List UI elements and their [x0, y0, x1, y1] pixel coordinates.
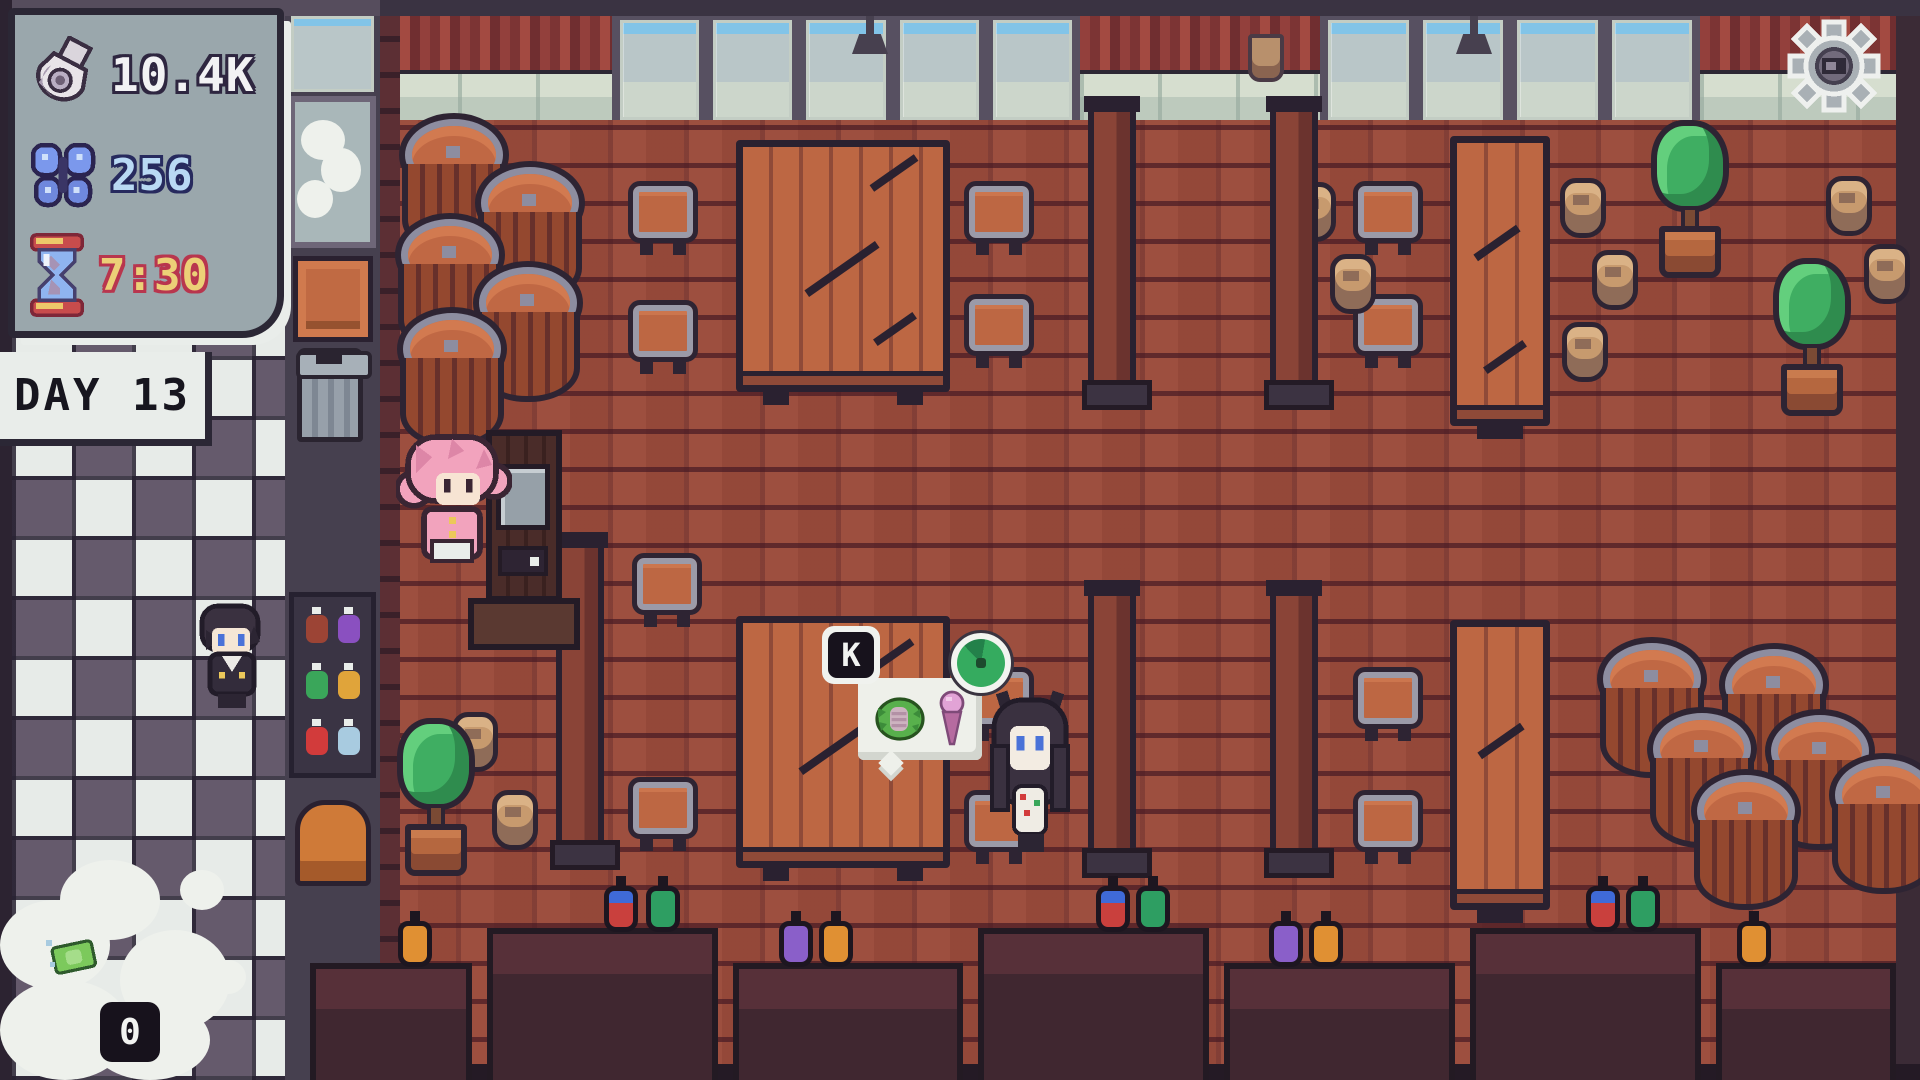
- bar-counter: [1470, 928, 1701, 1080]
- potion-bottle-icon: [1737, 921, 1771, 967]
- stool: [1353, 790, 1423, 864]
- ice-cream-icon: [938, 690, 966, 748]
- potion-bottle-icon: [1309, 921, 1343, 967]
- dish-counter-value: 0: [119, 1012, 141, 1053]
- money-value: 10.4K: [111, 48, 254, 102]
- stool: [628, 181, 698, 255]
- potion-bottle-icon: [819, 921, 853, 967]
- bottle-cabinet: [289, 592, 376, 778]
- potion-bottle-icon: [306, 727, 328, 755]
- potion-bottle-icon: [338, 727, 360, 755]
- long-table: [1450, 136, 1550, 426]
- potion-bottle-icon: [779, 921, 813, 967]
- lettuce-wrap-icon: [874, 694, 928, 744]
- window-pane: [1517, 20, 1598, 120]
- pillar: [1270, 104, 1318, 400]
- basin: [295, 800, 371, 886]
- bar-counter: [1224, 963, 1455, 1080]
- potion-bottle-icon: [306, 615, 328, 643]
- window-pane: [291, 16, 374, 92]
- potted-tree: [1768, 258, 1856, 416]
- gear-icon: [1786, 18, 1882, 114]
- suds: [210, 960, 246, 994]
- window-pane: [713, 20, 792, 120]
- butterfly-icon: [27, 139, 99, 211]
- pillar: [556, 540, 604, 860]
- bar-counter: [978, 928, 1209, 1080]
- stool: [632, 553, 702, 627]
- game-screen: K 0: [0, 0, 1920, 1080]
- bar-counter: [487, 928, 718, 1080]
- butterfly-value: 256: [111, 150, 193, 201]
- hud-timer-row: 7:30: [27, 225, 265, 325]
- potion-bottle-icon: [646, 886, 680, 932]
- bar-counter: [310, 963, 472, 1080]
- window-pane: [1328, 20, 1409, 120]
- potion-bottle-icon: [338, 615, 360, 643]
- window-pane: [900, 20, 979, 120]
- hud-butterfly-row: 256: [27, 125, 265, 225]
- suds: [180, 870, 224, 910]
- potion-bottle-icon: [1626, 886, 1660, 932]
- stool: [1353, 181, 1423, 255]
- stool: [964, 181, 1034, 255]
- dish-counter-badge: 0: [100, 1002, 160, 1062]
- settings-button[interactable]: [1786, 18, 1882, 114]
- day-banner: DAY 13: [0, 352, 212, 446]
- window-pane: [620, 20, 699, 120]
- window-pane: [1612, 20, 1693, 120]
- hourglass-icon: [27, 232, 87, 318]
- potion-bottle-icon: [1136, 886, 1170, 932]
- window-band: [1320, 16, 1700, 120]
- interact-key-prompt[interactable]: K: [822, 626, 880, 684]
- hud-money-row: 10.4K: [27, 25, 265, 125]
- barrel: [398, 306, 506, 448]
- clay-jug: [1864, 244, 1910, 304]
- stool: [628, 777, 698, 851]
- money-bag-icon: [27, 36, 99, 114]
- cash-icon: [42, 928, 106, 988]
- potion-bottle-icon: [1096, 886, 1130, 932]
- potted-tree: [392, 718, 480, 876]
- potion-bottle-icon: [1586, 886, 1620, 932]
- clay-jug: [1560, 178, 1606, 238]
- order-timer-icon: [948, 630, 1014, 696]
- clay-jug: [1562, 322, 1608, 382]
- stool: [628, 300, 698, 374]
- window-band: [612, 16, 1080, 120]
- bar-counter: [1716, 963, 1896, 1080]
- bar-counter: [733, 963, 963, 1080]
- stool: [1353, 667, 1423, 741]
- potion-bottle-icon: [604, 886, 638, 932]
- sink-station: [289, 96, 376, 248]
- window-pane: [993, 20, 1072, 120]
- day-label: DAY 13: [14, 370, 191, 421]
- kitchen-wall-column: [285, 16, 380, 1080]
- wall-lamp-icon: [1248, 34, 1284, 82]
- worker-character: [194, 602, 272, 712]
- key-label: K: [841, 636, 860, 674]
- station-counter: [468, 598, 580, 650]
- potion-bottle-icon: [398, 921, 432, 967]
- potion-bottle-icon: [1269, 921, 1303, 967]
- pendant-lamp-icon: [852, 16, 888, 60]
- dining-table: [736, 140, 950, 392]
- trash-can: [297, 348, 363, 442]
- customer-character: [982, 690, 1078, 862]
- right-wall: [1896, 16, 1920, 1080]
- potion-bottle-icon: [338, 671, 360, 699]
- barrel: [1830, 752, 1920, 894]
- hud-panel: 10.4K 256 7:30: [8, 8, 284, 338]
- barrel: [1692, 768, 1800, 910]
- potted-tree: [1646, 120, 1734, 278]
- pillar: [1088, 588, 1136, 868]
- crate: [293, 256, 373, 342]
- clay-jug: [492, 790, 538, 850]
- stool: [964, 294, 1034, 368]
- clay-jug: [1592, 250, 1638, 310]
- timer-value: 7:30: [99, 250, 209, 301]
- suds: [297, 180, 333, 218]
- clay-jug: [1330, 254, 1376, 314]
- pillar: [1270, 588, 1318, 868]
- pendant-lamp-icon: [1456, 16, 1492, 60]
- long-table: [1450, 620, 1550, 910]
- pillar: [1088, 104, 1136, 400]
- player-character: [396, 428, 512, 570]
- clay-jug: [1826, 176, 1872, 236]
- potion-bottle-icon: [306, 671, 328, 699]
- wall-section: [380, 16, 612, 120]
